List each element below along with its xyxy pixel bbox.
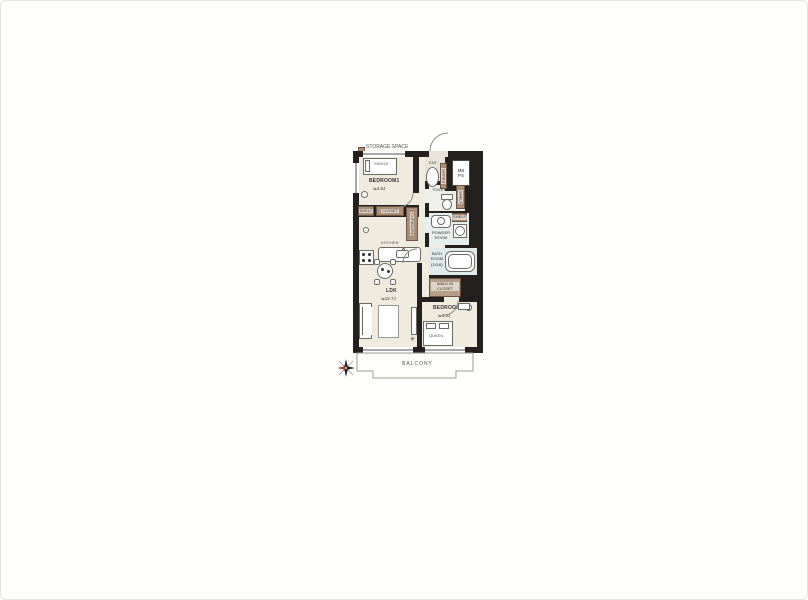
hall-door-arc — [403, 249, 417, 263]
bedroom2-door-arc — [444, 301, 458, 315]
plan-overlay — [1, 1, 808, 600]
floor-plan-canvas: STORAGE SPACE SINGLE BEDROOM1 ≒4.5J SHEL… — [0, 0, 808, 600]
compass-icon — [337, 359, 355, 377]
entrance-door-arc — [430, 133, 448, 151]
bedroom1-door-arc — [399, 193, 413, 207]
balcony-label: BALCONY — [402, 362, 433, 368]
